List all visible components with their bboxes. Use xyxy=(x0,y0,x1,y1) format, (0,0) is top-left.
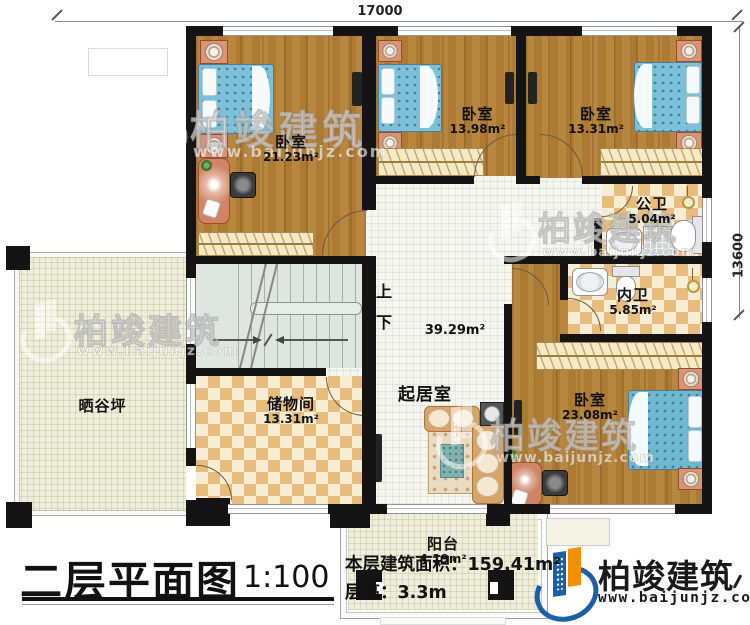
plant xyxy=(201,160,212,171)
wall xyxy=(504,256,702,264)
floor-height-text: 层高：3.3m xyxy=(345,579,447,604)
room-area: 5.04m² xyxy=(602,213,702,227)
room-area: 39.29m² xyxy=(420,324,490,339)
room-name: 卧室 xyxy=(235,134,347,151)
room-label-bath-public: 公卫 5.04m² xyxy=(602,196,702,227)
room-name: 内卫 xyxy=(578,287,688,304)
room-label-living: 起居室 xyxy=(380,386,470,406)
window xyxy=(186,278,196,344)
title-underline-thin xyxy=(22,604,334,605)
computer-monitor xyxy=(542,470,568,496)
column xyxy=(6,246,30,270)
living-room-area-label: 39.29m² xyxy=(420,324,490,339)
wall xyxy=(376,176,474,184)
annotation-outline xyxy=(88,48,168,76)
top-dimension-line xyxy=(55,21,743,22)
window xyxy=(702,198,712,242)
wall xyxy=(702,26,712,514)
side-table xyxy=(480,402,504,426)
window xyxy=(582,26,677,36)
wall xyxy=(504,304,512,504)
pillow xyxy=(686,96,700,124)
wall xyxy=(362,256,376,376)
column-notch xyxy=(490,582,498,594)
tv xyxy=(514,400,522,436)
nightstand xyxy=(200,134,228,158)
nightstand xyxy=(200,40,228,64)
room-name: 储物间 xyxy=(235,396,347,413)
room-area: 21.23m² xyxy=(235,151,347,165)
light-pull xyxy=(687,280,700,293)
tv xyxy=(528,72,537,104)
room-label-storage: 储物间 13.31m² xyxy=(235,396,347,427)
room-name: 卧室 xyxy=(535,392,645,409)
brand-url: www.baijunjz.com xyxy=(598,590,750,606)
drying-yard-floor xyxy=(14,252,194,516)
room-name: 公卫 xyxy=(602,196,702,213)
pillow xyxy=(381,97,395,124)
right-dimension-label: 13600 xyxy=(732,226,747,286)
room-name: 起居室 xyxy=(380,386,470,406)
stairs-up-label: 上 xyxy=(376,278,392,302)
wall xyxy=(196,368,326,376)
floor-plan: 17000 13600 xyxy=(0,0,750,625)
computer-monitor xyxy=(230,172,256,198)
door-opening xyxy=(186,466,196,500)
pillow xyxy=(202,100,217,128)
room-area: 5.85m² xyxy=(578,304,688,318)
dimension-tick xyxy=(731,9,742,20)
window xyxy=(550,504,675,514)
column xyxy=(186,498,230,526)
pillow xyxy=(686,66,700,94)
wall xyxy=(560,264,568,300)
room-name: 晒谷坪 xyxy=(45,398,160,415)
sink xyxy=(606,228,642,256)
room-area: 13.31m² xyxy=(235,413,347,427)
wardrobe xyxy=(198,232,314,256)
top-dimension-label: 17000 xyxy=(345,4,415,19)
stair-arrow-right-icon xyxy=(253,336,262,344)
closet xyxy=(378,148,484,176)
wall xyxy=(582,176,702,184)
sofa-cushion xyxy=(476,476,499,497)
window xyxy=(186,384,196,448)
wall xyxy=(560,334,702,342)
room-area: 13.98m² xyxy=(420,123,535,137)
sofa-cushion xyxy=(476,453,499,474)
brand-tick-mark xyxy=(733,574,743,589)
room-label-bedroom-tr: 卧室 13.31m² xyxy=(540,106,652,137)
wall xyxy=(526,176,540,184)
room-area: 23.08m² xyxy=(535,409,645,423)
coffee-table xyxy=(440,444,464,478)
room-label-bedroom-br: 卧室 23.08m² xyxy=(535,392,645,423)
room-name: 卧室 xyxy=(540,106,652,123)
column xyxy=(330,508,370,528)
closet xyxy=(600,148,704,176)
window xyxy=(228,504,328,514)
sofa-cushion xyxy=(452,409,474,428)
window xyxy=(223,26,333,36)
pillow xyxy=(688,396,702,428)
sofa-cushion xyxy=(428,409,450,428)
dimension-tick xyxy=(51,9,62,20)
wall xyxy=(196,256,376,264)
stairs-down-label: 下 xyxy=(376,309,392,333)
room-label-bath-private: 内卫 5.85m² xyxy=(578,287,688,318)
wall xyxy=(362,376,376,504)
pillow xyxy=(688,430,702,462)
stair-direction-line xyxy=(284,339,348,341)
closet xyxy=(536,342,704,370)
tv xyxy=(505,72,514,104)
room-label-bedroom-tl: 卧室 21.23m² xyxy=(235,134,347,165)
nightstand xyxy=(676,40,702,62)
terrace-outline xyxy=(546,518,610,546)
tv xyxy=(352,72,362,106)
nightstand xyxy=(678,368,704,390)
stair-direction-line xyxy=(212,339,254,341)
wall xyxy=(362,36,376,210)
balcony-steps xyxy=(380,617,506,625)
stair-treads xyxy=(238,264,362,368)
floor-area-text: 本层建筑面积：159.41m² xyxy=(345,551,561,576)
pillow xyxy=(202,68,217,96)
balcony-sliding-door xyxy=(387,504,487,514)
nightstand xyxy=(678,468,704,490)
title-underline xyxy=(22,597,334,601)
room-area: 13.31m² xyxy=(540,123,652,137)
sofa-cushion xyxy=(476,430,499,451)
plan-scale: 1:100 xyxy=(243,560,329,595)
room-label-bedroom-tm: 卧室 13.98m² xyxy=(420,106,535,137)
stair-arrow-left-icon xyxy=(275,336,284,344)
column xyxy=(486,508,510,526)
window xyxy=(398,26,511,36)
room-label-drying-yard: 晒谷坪 xyxy=(45,398,160,415)
nightstand xyxy=(378,40,402,62)
watermark-logo-icon xyxy=(128,96,182,158)
window xyxy=(702,278,712,322)
column xyxy=(6,502,32,528)
wall xyxy=(594,218,602,256)
room-name: 卧室 xyxy=(420,106,535,123)
pillow xyxy=(381,68,395,95)
